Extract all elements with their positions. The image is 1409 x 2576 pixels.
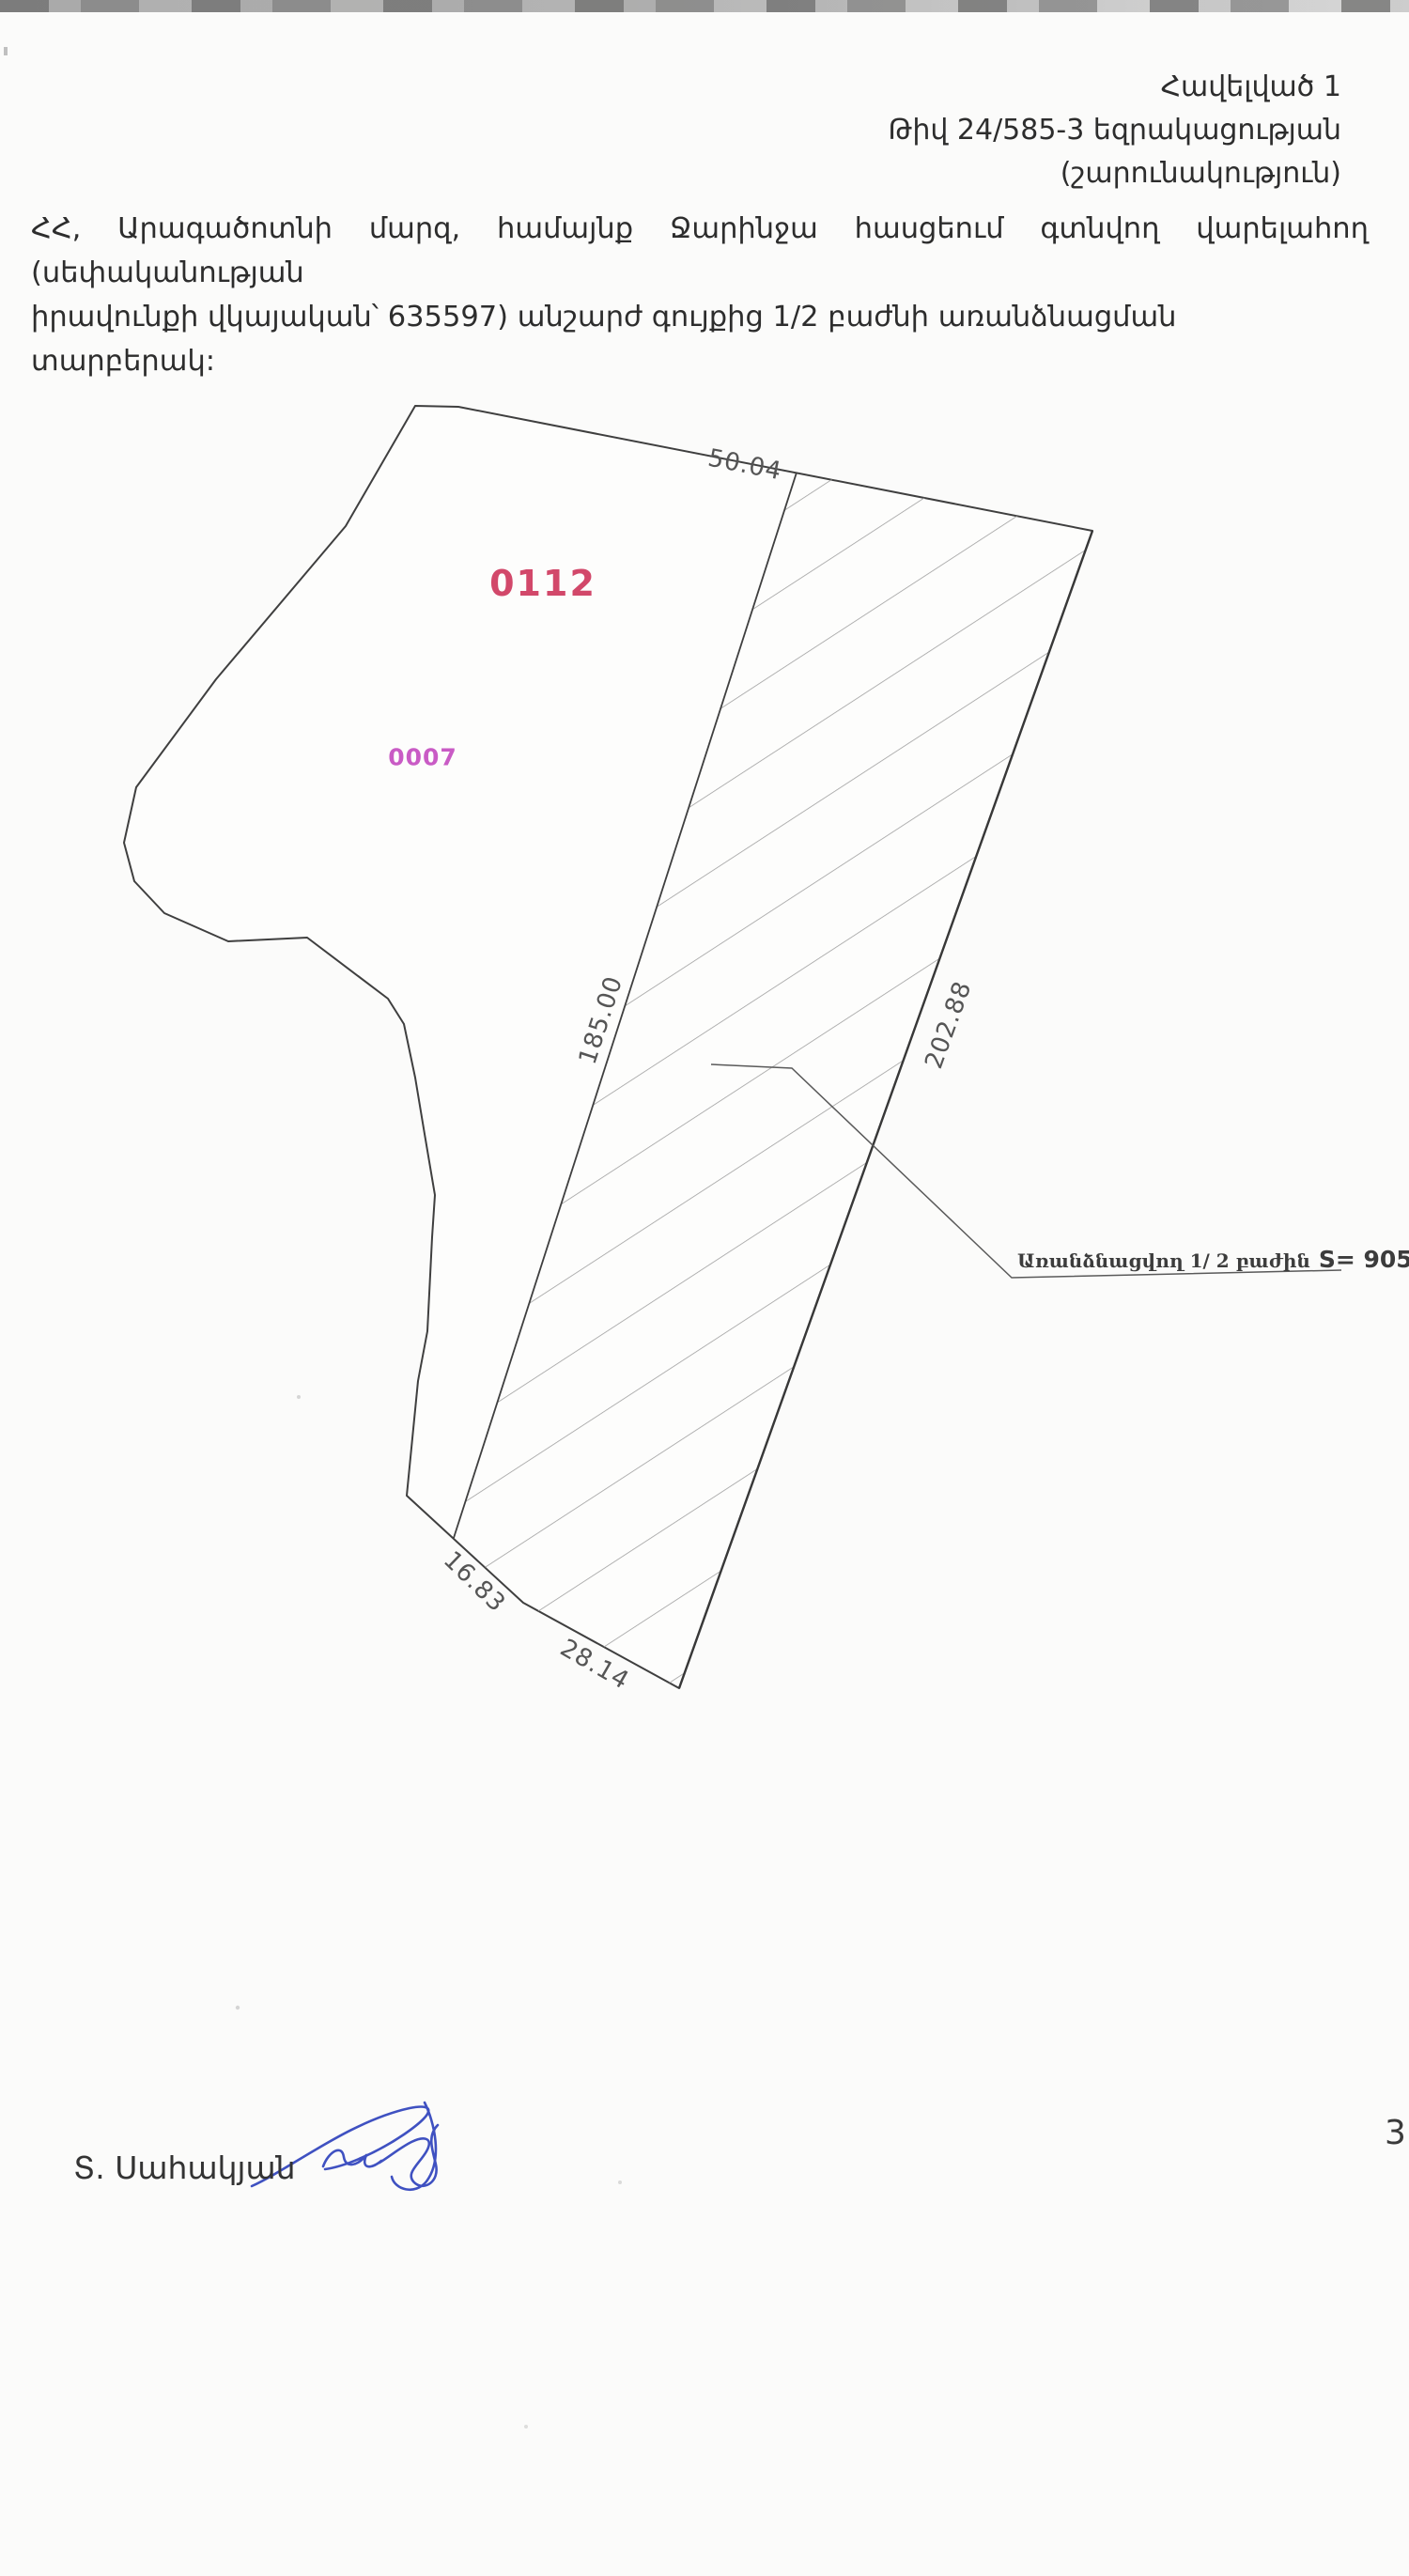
description-line-1: ՀՀ, Արագածոտնի մարզ, համայնք Ջարինջա հաս… xyxy=(31,207,1369,295)
dimension-bottom-right-label: 28.14 xyxy=(555,1634,634,1696)
dimension-bottom-left-label: 16.83 xyxy=(438,1546,511,1619)
scan-speck xyxy=(4,47,622,2429)
document-header: Հավելված 1 Թիվ 24/585-3 եզրակացության (շ… xyxy=(684,66,1341,195)
cadastral-plan-drawing xyxy=(0,0,1409,2576)
dimension-top-label: 50.04 xyxy=(705,444,784,487)
conclusion-number: Թիվ 24/585-3 եզրակացության xyxy=(684,109,1341,152)
description-line-2: իրավունքի վկայական՝ 635597) անշարժ գույք… xyxy=(31,295,1369,383)
neighbor-parcel-code-label: 0007 xyxy=(388,744,457,771)
page-number: 3 xyxy=(1385,2114,1406,2152)
dimension-left-label: 185.00 xyxy=(574,972,629,1068)
scan-artifact-band xyxy=(0,0,1409,12)
separated-area-hatch xyxy=(454,473,1092,1688)
separated-share-text: Առանձնացվող 1/ 2 բաժին xyxy=(1017,1249,1310,1272)
description-paragraph: ՀՀ, Արագածոտնի մարզ, համայնք Ջարինջա հաս… xyxy=(31,207,1369,383)
separated-share-callout: Առանձնացվող 1/ 2 բաժին S= 9050քմ xyxy=(1017,1246,1355,1273)
signatory-name: Տ. Սահակյան xyxy=(73,2149,296,2186)
document-page: Հավելված 1 Թիվ 24/585-3 եզրակացության (շ… xyxy=(0,0,1409,2576)
right-edge-line xyxy=(679,531,1092,1688)
parcel-code-label: 0112 xyxy=(489,563,596,604)
separated-share-area: S= 9050քմ xyxy=(1319,1246,1409,1273)
appendix-title: Հավելված 1 xyxy=(684,66,1341,109)
continuation-note: (շարունակություն) xyxy=(684,152,1341,195)
dimension-right-label: 202.88 xyxy=(920,977,977,1072)
divider-line xyxy=(454,473,797,1538)
